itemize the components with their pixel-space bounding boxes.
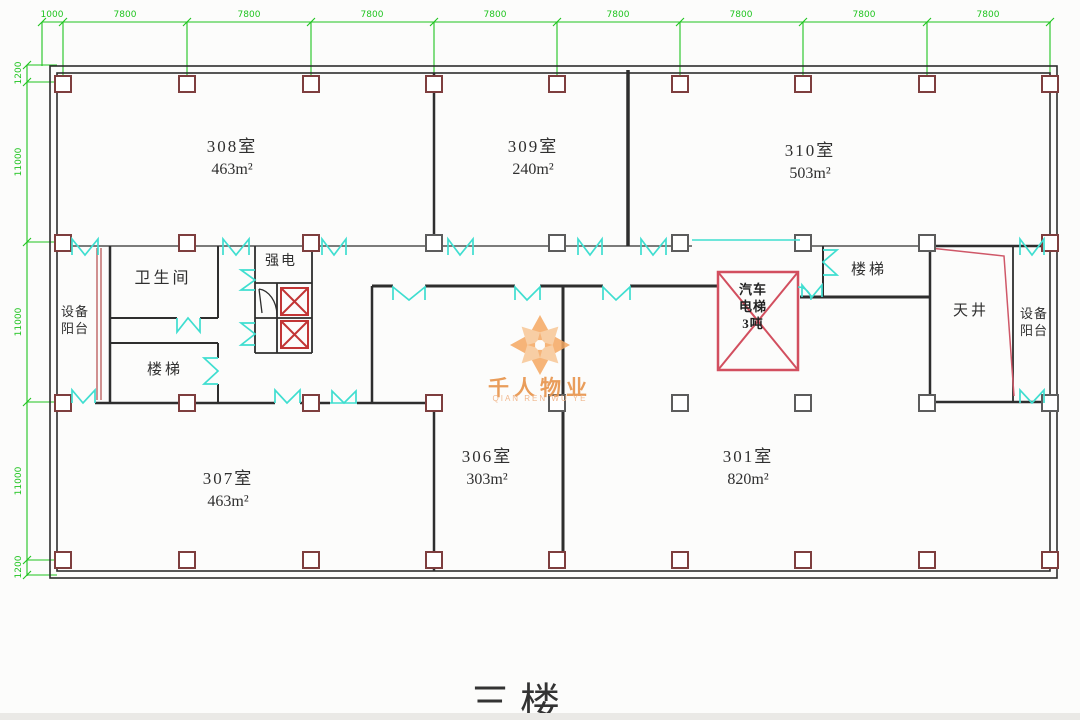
toilet-label: 卫生间 <box>118 268 208 290</box>
page-bottom-strip <box>0 713 1080 720</box>
stairs-left-label: 楼梯 <box>125 360 205 380</box>
dim-top-3: 7800 <box>352 10 392 20</box>
strong-electric-label: 强电 <box>251 253 311 272</box>
balcony-rail-lines <box>97 248 101 400</box>
dim-left-4: 1200 <box>14 545 26 589</box>
dim-top-0: 1000 <box>32 10 72 20</box>
room-label-310: 310室 503m² <box>740 140 880 185</box>
equip-balcony-left-label: 设备 阳台 <box>53 303 97 337</box>
room-label-308: 308室 463m² <box>162 136 302 181</box>
courtyard-label: 天井 <box>936 301 1006 321</box>
watermark-subtitle: QIAN REN WU YE <box>480 394 600 403</box>
dim-left-3: 11000 <box>14 459 26 503</box>
room-label-307: 307室 463m² <box>158 468 298 513</box>
equip-balcony-right-label: 设备 阳台 <box>1012 305 1056 339</box>
dim-left-1: 11000 <box>14 140 26 184</box>
dim-top-6: 7800 <box>721 10 761 20</box>
dim-top-8: 7800 <box>968 10 1008 20</box>
room-label-309: 309室 240m² <box>463 136 603 181</box>
courtyard-ramp-line <box>930 248 1014 396</box>
dim-left-2: 11000 <box>14 300 26 344</box>
dim-top-7: 7800 <box>844 10 884 20</box>
room-label-301: 301室 820m² <box>678 446 818 491</box>
dim-top-1: 7800 <box>105 10 145 20</box>
dim-left-0: 1200 <box>14 51 26 95</box>
car-elevator-label: 汽车 电梯 3吨 <box>723 281 783 332</box>
watermark-logo-icon <box>503 308 577 382</box>
dim-top-5: 7800 <box>598 10 638 20</box>
room-label-306: 306室 303m² <box>417 446 557 491</box>
dim-top-2: 7800 <box>229 10 269 20</box>
floor-plan-page: 1000 7800 7800 7800 7800 7800 7800 7800 … <box>0 0 1080 720</box>
stairs-right-label: 楼梯 <box>829 260 909 280</box>
dim-top-4: 7800 <box>475 10 515 20</box>
